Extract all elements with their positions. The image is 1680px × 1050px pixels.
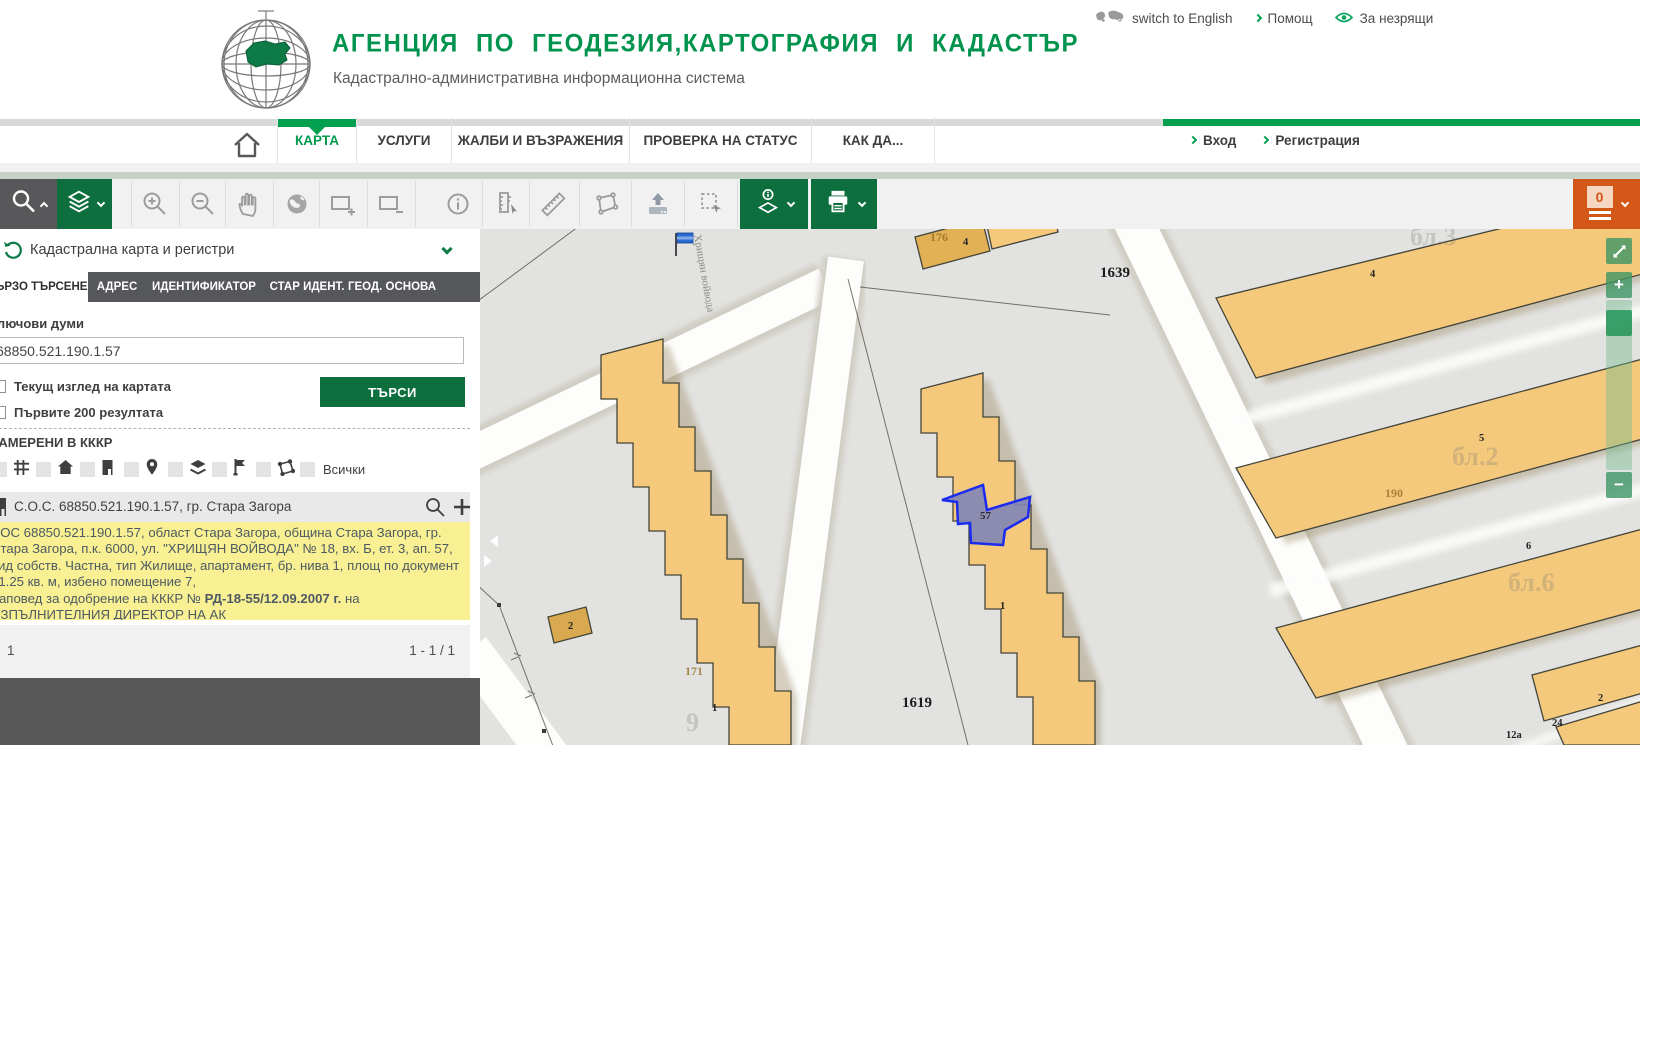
fullscreen-button[interactable] <box>1606 238 1632 264</box>
checkbox[interactable] <box>0 380 6 393</box>
header-links: switch to English Помощ За незрящи <box>1095 8 1433 28</box>
page: АГЕНЦИЯ ПО ГЕОДЕЗИЯ,КАРТОГРАФИЯ И КАДАСТ… <box>0 0 1680 1050</box>
result-type-filters: Всички <box>0 458 365 481</box>
nav-tab-label: ЖАЛБИ И ВЪЗРАЖЕНИЯ <box>458 133 623 148</box>
result-title: С.О.С. 68850.521.190.1.57, гр. Стара Заг… <box>14 499 291 514</box>
page-number[interactable]: 1 <box>7 643 15 658</box>
flag-icon <box>233 458 246 481</box>
arrow-icon <box>1261 136 1269 144</box>
arrow-icon <box>1189 136 1197 144</box>
page-range: 1 - 1 / 1 <box>409 643 455 658</box>
building-icon <box>0 497 7 522</box>
map-label: 2 <box>1598 693 1603 704</box>
search-panel-button[interactable] <box>0 179 57 229</box>
map-label: 190 <box>1385 486 1403 500</box>
filter-checkbox[interactable] <box>212 462 227 477</box>
nav-tab-label: КАРТА <box>295 133 339 148</box>
keywords-label: Ключови думи <box>0 316 84 331</box>
agency-globe-logo <box>218 9 314 114</box>
separator <box>0 428 470 429</box>
option-current-view: Текущ изглед на картата <box>0 379 171 394</box>
agency-subtitle: Кадастрално-административна информационн… <box>333 70 745 88</box>
map-label: бл.2 <box>1452 442 1498 471</box>
building-icon <box>101 459 114 481</box>
location-pin-icon <box>145 458 159 481</box>
zoom-slider-handle[interactable] <box>1606 310 1632 336</box>
zoom-to-result-button[interactable] <box>424 496 446 523</box>
polygon-measure-button[interactable] <box>582 179 630 229</box>
printer-icon <box>824 189 852 220</box>
search-tab-3[interactable]: СТАР ИДЕНТ. <box>266 272 348 302</box>
search-icon <box>10 188 37 220</box>
search-tab-1[interactable]: АДРЕС <box>92 272 142 302</box>
filter-checkbox[interactable] <box>168 462 183 477</box>
map-label: 1619 <box>902 695 932 711</box>
map-label: бл.6 <box>1508 568 1554 597</box>
nav-tabs: КАРТАУСЛУГИЖАЛБИ И ВЪЗРАЖЕНИЯПРОВЕРКА НА… <box>277 117 935 163</box>
map-label: 2 <box>568 621 573 632</box>
chevron-down-icon <box>1620 198 1628 206</box>
nav-tab-1[interactable]: УСЛУГИ <box>357 117 452 163</box>
sidebar-footer <box>0 678 480 745</box>
ruler-button[interactable] <box>529 179 577 229</box>
cadastral-map[interactable]: 57 Хрищян войвода 17641639бл.345бл.21906… <box>480 229 1640 745</box>
map-label: 4 <box>1370 269 1376 280</box>
nav-tab-4[interactable]: КАК ДА... <box>812 117 935 163</box>
map-canvas: 57 Хрищян войвода 17641639бл.345бл.21906… <box>480 229 1640 745</box>
info-layers-button[interactable] <box>740 179 808 229</box>
info-button[interactable] <box>434 179 482 229</box>
register-link[interactable]: Регистрация <box>1262 133 1359 148</box>
map-zoom-in-button[interactable]: + <box>1606 272 1632 298</box>
layers-button[interactable] <box>57 179 112 229</box>
filter-checkbox[interactable] <box>256 462 271 477</box>
layers-icon <box>65 188 93 221</box>
upload-button[interactable] <box>634 179 682 229</box>
add-result-button[interactable] <box>452 496 472 523</box>
map-label: бл.3 <box>1410 229 1456 251</box>
nav-tab-label: КАК ДА... <box>843 133 904 148</box>
house-icon <box>57 459 74 480</box>
filter-checkbox[interactable] <box>0 462 7 477</box>
map-zoom-out-button[interactable]: − <box>1606 472 1632 498</box>
cart-count-badge: 0 <box>1587 186 1613 208</box>
info-layers-icon <box>754 187 782 222</box>
zoom-out-button[interactable] <box>179 179 227 229</box>
result-row[interactable]: С.О.С. 68850.521.190.1.57, гр. Стара Заг… <box>0 492 470 522</box>
checkbox[interactable] <box>0 406 6 419</box>
nav-tab-2[interactable]: ЖАЛБИ И ВЪЗРАЖЕНИЯ <box>452 117 630 163</box>
cart-orders-button[interactable]: 0 <box>1573 179 1640 229</box>
header: АГЕНЦИЯ ПО ГЕОДЕЗИЯ,КАРТОГРАФИЯ И КАДАСТ… <box>0 0 1640 117</box>
map-label: 24 <box>1552 718 1563 729</box>
search-tab-2[interactable]: ИДЕНТИФИКАТОР <box>146 272 262 302</box>
result-details-text: СОС 68850.521.190.1.57, област Стара Заг… <box>0 525 459 589</box>
map-label: 1639 <box>1100 265 1130 281</box>
filter-all: Всички <box>300 462 365 477</box>
zoom-in-button[interactable] <box>131 179 179 229</box>
login-link[interactable]: Вход <box>1190 133 1236 148</box>
toolbar-accent-strip <box>0 172 1640 179</box>
main-navigation: КАРТАУСЛУГИЖАЛБИ И ВЪЗРАЖЕНИЯПРОВЕРКА НА… <box>0 117 1640 163</box>
zoom-slider-track[interactable] <box>1606 300 1632 470</box>
world-map-icon <box>1095 9 1125 27</box>
results-header: НАМЕРЕНИ В КККР <box>0 435 112 450</box>
nav-tab-3[interactable]: ПРОВЕРКА НА СТАТУС <box>630 117 812 163</box>
help-link[interactable]: Помощ <box>1255 11 1313 26</box>
map-label: 12а <box>1506 730 1523 741</box>
cart-icon: 0 <box>1586 186 1614 222</box>
measure-scale-button[interactable] <box>485 179 533 229</box>
panel-title: Кадастрална карта и регистри <box>30 242 234 258</box>
keywords-input[interactable] <box>0 337 464 364</box>
switch-language-link[interactable]: switch to English <box>1095 9 1233 27</box>
filter-checkbox[interactable] <box>80 462 95 477</box>
agency-title: АГЕНЦИЯ ПО ГЕОДЕЗИЯ,КАРТОГРАФИЯ И КАДАСТ… <box>332 29 1079 58</box>
selected-parcel-label: 57 <box>980 510 992 522</box>
grid-parcel-icon <box>13 459 30 481</box>
chevron-up-icon <box>40 201 48 209</box>
arrow-icon <box>1253 14 1261 22</box>
select-area-button[interactable] <box>688 179 736 229</box>
eye-icon <box>1335 11 1353 26</box>
panel-header: Кадастрална карта и регистри <box>0 229 480 272</box>
result-details: СОС 68850.521.190.1.57, област Стара Заг… <box>0 522 470 620</box>
pagination: 1 1 - 1 / 1 <box>0 625 470 678</box>
collapse-panel-arrow-left[interactable] <box>484 535 498 547</box>
zoom-window-in-button[interactable] <box>319 179 367 229</box>
search-tab-4[interactable]: ГЕОД. ОСНОВА <box>352 272 432 302</box>
nav-auth: Вход Регистрация <box>1190 117 1360 163</box>
switch-map-icon <box>2 239 24 266</box>
map-label: 176 <box>930 230 948 244</box>
filter-checkbox[interactable] <box>124 462 139 477</box>
map-label: 1 <box>1000 601 1005 612</box>
zoom-window-out-button[interactable] <box>367 179 415 229</box>
search-tab-0[interactable]: БЪРЗО ТЪРСЕНЕ <box>0 272 88 302</box>
nav-tab-label: УСЛУГИ <box>377 133 430 148</box>
map-label: 1 <box>712 703 717 714</box>
map-label: 9 <box>686 708 699 737</box>
chevron-down-icon[interactable] <box>441 243 452 254</box>
chevron-down-icon <box>857 198 865 206</box>
nav-tab-0[interactable]: КАРТА <box>277 117 357 163</box>
option-first-200: Първите 200 резултата <box>0 405 163 420</box>
map-toolbar: 0 <box>0 163 1640 229</box>
accessibility-link[interactable]: За незрящи <box>1335 11 1434 26</box>
filter-checkbox[interactable] <box>36 462 51 477</box>
collapse-panel-arrow-right[interactable] <box>484 555 498 567</box>
search-submit-button[interactable]: ТЪРСИ <box>320 377 465 407</box>
map-label: 171 <box>685 664 703 678</box>
chevron-down-icon <box>97 198 105 206</box>
print-button[interactable] <box>811 179 877 229</box>
home-button[interactable] <box>231 130 263 160</box>
layers-small-icon <box>189 459 207 480</box>
search-tabs: БЪРЗО ТЪРСЕНЕАДРЕСИДЕНТИФИКАТОРСТАР ИДЕН… <box>0 272 480 302</box>
polygon-icon <box>277 459 295 481</box>
map-label: 4 <box>963 237 969 248</box>
search-sidebar: Кадастрална карта и регистри БЪРЗО ТЪРСЕ… <box>0 229 480 745</box>
filter-all-checkbox[interactable] <box>300 462 315 477</box>
globe-button[interactable] <box>273 179 321 229</box>
chevron-down-icon <box>787 198 795 206</box>
nav-tab-label: ПРОВЕРКА НА СТАТУС <box>643 133 797 148</box>
map-label: 6 <box>1526 541 1531 552</box>
pan-hand-button[interactable] <box>225 179 273 229</box>
